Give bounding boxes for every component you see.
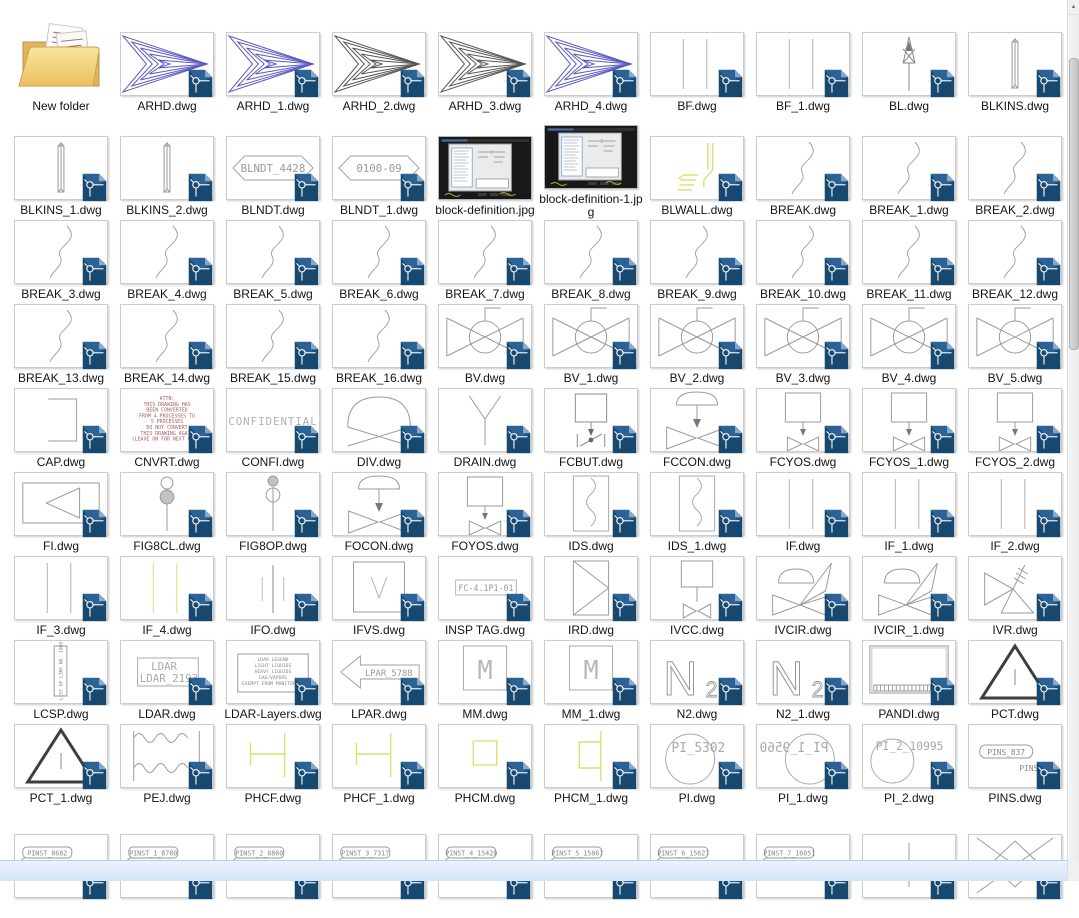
svg-text:PINST_1_8780: PINST_1_8780 (129, 849, 177, 857)
file-label: IF_1.dwg (884, 536, 933, 555)
dwg-badge-icon (822, 425, 851, 454)
scrollbar-corner (1068, 861, 1079, 881)
file-item[interactable]: BREAK_9.dwg (644, 220, 750, 304)
file-label: BV_1.dwg (564, 368, 619, 387)
file-label: PI.dwg (679, 788, 716, 807)
dwg-thumbnail (120, 136, 214, 200)
file-label: IVR.dwg (992, 620, 1037, 639)
file-label: IF_4.dwg (142, 620, 191, 639)
file-item[interactable]: FCYOS_1.dwg (856, 388, 962, 472)
dwg-badge-icon (398, 509, 427, 538)
file-label: CNVRT.dwg (134, 452, 199, 471)
file-item[interactable]: PI_2_10995PI_2.dwg (856, 724, 962, 808)
dwg-badge-icon (928, 257, 957, 286)
dwg-badge-icon (80, 593, 109, 622)
dwg-thumbnail (650, 556, 744, 620)
file-label: IDS_1.dwg (668, 536, 727, 555)
file-label: ARHD_3.dwg (449, 96, 522, 115)
dwg-badge-icon (1034, 341, 1063, 370)
svg-text:PINST_4_15420: PINST_4_15420 (445, 849, 497, 857)
dwg-thumbnail (650, 388, 744, 452)
file-item[interactable]: BREAK_5.dwg (220, 220, 326, 304)
dwg-thumbnail (226, 304, 320, 368)
file-item[interactable]: IF_4.dwg (114, 556, 220, 640)
dwg-badge-icon (610, 509, 639, 538)
file-item[interactable]: PHCF_1.dwg (326, 724, 432, 808)
dwg-badge-icon (928, 69, 957, 98)
dwg-badge-icon (1034, 425, 1063, 454)
file-label: BV_4.dwg (882, 368, 937, 387)
file-item[interactable]: BREAK_11.dwg (856, 220, 962, 304)
file-item[interactable]: FCYOS_2.dwg (962, 388, 1068, 472)
file-item[interactable]: DIV.dwg (326, 388, 432, 472)
file-label: INSP TAG.dwg (445, 620, 525, 639)
file-label: FIG8CL.dwg (133, 536, 200, 555)
dwg-badge-icon (186, 593, 215, 622)
dwg-badge-icon (292, 761, 321, 790)
svg-text:GAS/VAPORS: GAS/VAPORS (259, 675, 287, 681)
dwg-badge-icon (504, 341, 533, 370)
dwg-badge-icon (504, 593, 533, 622)
file-item[interactable]: FOYOS.dwg (432, 472, 538, 556)
file-item[interactable]: BLKINS_2.dwg (114, 116, 220, 220)
svg-text:M: M (477, 656, 492, 686)
dwg-thumbnail: LDAR LEGENDLIGHT LIQUIDSHEAVY LIQUIDSGAS… (226, 640, 320, 704)
file-item[interactable]: block-definition.jpg (432, 116, 538, 220)
file-item[interactable]: BREAK_2.dwg (962, 116, 1068, 220)
file-item[interactable]: 0100-09BLNDT_1.dwg (326, 116, 432, 220)
file-label: PI_1.dwg (778, 788, 828, 807)
file-item[interactable]: BREAK_13.dwg (8, 304, 114, 388)
file-item[interactable]: PCT_1.dwg (8, 724, 114, 808)
dwg-thumbnail (756, 388, 850, 452)
file-item[interactable]: BREAK_8.dwg (538, 220, 644, 304)
file-label: MM.dwg (462, 704, 507, 723)
file-grid: New folderARHD.dwgARHD_1.dwgARHD_2.dwgAR… (8, 0, 1068, 918)
dwg-badge-icon (610, 677, 639, 706)
dwg-thumbnail (650, 136, 744, 200)
dwg-thumbnail (438, 304, 532, 368)
dwg-thumbnail (332, 472, 426, 536)
svg-text:PINST_8682: PINST_8682 (27, 849, 67, 857)
dwg-badge-icon (928, 509, 957, 538)
file-item[interactable]: PI_5302PI.dwg (644, 724, 750, 808)
dwg-badge-icon (398, 257, 427, 286)
file-item[interactable]: ARHD.dwg (114, 0, 220, 116)
file-item[interactable]: FIG8OP.dwg (220, 472, 326, 556)
dwg-badge-icon (186, 341, 215, 370)
dwg-badge-icon (504, 257, 533, 286)
dwg-badge-icon (186, 69, 215, 98)
svg-text:0100-09: 0100-09 (356, 162, 401, 175)
file-item[interactable]: FOCON.dwg (326, 472, 432, 556)
file-item[interactable]: LDARLDAR_2193LDAR.dwg (114, 640, 220, 724)
dwg-thumbnail (650, 304, 744, 368)
file-item[interactable]: IF.dwg (750, 472, 856, 556)
dwg-badge-icon (186, 425, 215, 454)
dwg-badge-icon (1034, 677, 1063, 706)
file-label: IF_3.dwg (36, 620, 85, 639)
file-item[interactable]: PINS_837PINS_828PINS.dwg (962, 724, 1068, 808)
file-item[interactable]: BREAK_12.dwg (962, 220, 1068, 304)
file-item[interactable]: BREAK.dwg (750, 116, 856, 220)
file-item[interactable]: FCYOS.dwg (750, 388, 856, 472)
file-item[interactable]: IDS_1.dwg (644, 472, 750, 556)
file-label: IVCIR_1.dwg (874, 620, 945, 639)
file-label: IDS.dwg (568, 536, 613, 555)
dwg-badge-icon (716, 677, 745, 706)
dwg-badge-icon (292, 593, 321, 622)
file-item[interactable]: BREAK_7.dwg (432, 220, 538, 304)
file-label: CONFI.dwg (242, 452, 305, 471)
dwg-badge-icon (822, 593, 851, 622)
vertical-scrollbar-thumb[interactable] (1069, 58, 1079, 350)
dwg-thumbnail (544, 724, 638, 788)
file-label: CAP.dwg (37, 452, 85, 471)
dwg-badge-icon (504, 425, 533, 454)
dwg-thumbnail: M (438, 640, 532, 704)
file-label: BREAK_10.dwg (760, 284, 846, 303)
dwg-thumbnail (226, 472, 320, 536)
dwg-thumbnail (14, 388, 108, 452)
dwg-badge-icon (1034, 69, 1063, 98)
dwg-thumbnail (332, 556, 426, 620)
file-label: FCCON.dwg (663, 452, 731, 471)
file-label: DIV.dwg (357, 452, 401, 471)
dwg-thumbnail (756, 304, 850, 368)
file-label: BREAK.dwg (770, 200, 836, 219)
dwg-badge-icon (292, 425, 321, 454)
file-label: N2.dwg (677, 704, 718, 723)
dwg-badge-icon (186, 509, 215, 538)
dwg-thumbnail (332, 220, 426, 284)
file-item[interactable]: LIST OF LINE NO. 1989LCSP.dwg (8, 640, 114, 724)
dwg-badge-icon (822, 257, 851, 286)
file-item[interactable]: FC-4.1P1-01INSP TAG.dwg (432, 556, 538, 640)
file-item[interactable]: BV_3.dwg (750, 304, 856, 388)
dwg-badge-icon (1034, 593, 1063, 622)
file-label: FCYOS_1.dwg (869, 452, 949, 471)
file-label: FCBUT.dwg (559, 452, 623, 471)
svg-text:PI_2_10995: PI_2_10995 (876, 739, 944, 753)
file-item[interactable]: BLNDT_4428BLNDT.dwg (220, 116, 326, 220)
dwg-badge-icon (822, 69, 851, 98)
file-label: BF_1.dwg (776, 96, 830, 115)
dwg-thumbnail (14, 724, 108, 788)
file-item[interactable]: IVCIR.dwg (750, 556, 856, 640)
file-label: LCSP.dwg (33, 704, 88, 723)
dwg-badge-icon (716, 761, 745, 790)
file-item[interactable]: BREAK_3.dwg (8, 220, 114, 304)
file-item[interactable]: IVCIR_1.dwg (856, 556, 962, 640)
file-item[interactable]: BREAK_1.dwg (856, 116, 962, 220)
file-item[interactable]: BV_1.dwg (538, 304, 644, 388)
file-item[interactable]: BV_4.dwg (856, 304, 962, 388)
dwg-thumbnail (120, 32, 214, 96)
dwg-badge-icon (822, 173, 851, 202)
dwg-thumbnail (226, 220, 320, 284)
dwg-badge-icon (1034, 173, 1063, 202)
dwg-badge-icon (504, 677, 533, 706)
dwg-thumbnail (968, 136, 1062, 200)
dwg-badge-icon (610, 761, 639, 790)
dwg-badge-icon (80, 677, 109, 706)
file-item[interactable]: BLKINS_1.dwg (8, 116, 114, 220)
dwg-thumbnail: N2 (756, 640, 850, 704)
file-item[interactable]: IFO.dwg (220, 556, 326, 640)
file-label: BREAK_3.dwg (21, 284, 100, 303)
vertical-scrollbar[interactable]: ▲ (1067, 0, 1079, 881)
dwg-thumbnail (862, 220, 956, 284)
file-item[interactable]: PANDI.dwg (856, 640, 962, 724)
dwg-thumbnail (862, 556, 956, 620)
file-item[interactable]: New folder (8, 0, 114, 116)
file-item[interactable]: IVR.dwg (962, 556, 1068, 640)
file-item[interactable]: FI.dwg (8, 472, 114, 556)
file-item[interactable]: IF_2.dwg (962, 472, 1068, 556)
dwg-thumbnail (332, 388, 426, 452)
dwg-badge-icon (292, 69, 321, 98)
file-item[interactable]: IF_1.dwg (856, 472, 962, 556)
image-thumbnail (544, 125, 638, 189)
dwg-badge-icon (822, 761, 851, 790)
file-item[interactable]: BREAK_15.dwg (220, 304, 326, 388)
file-item[interactable]: PHCF.dwg (220, 724, 326, 808)
dwg-thumbnail: PI_1_9560 (756, 724, 850, 788)
file-item[interactable]: FCCON.dwg (644, 388, 750, 472)
file-item[interactable]: LPAR_5788LPAR.dwg (326, 640, 432, 724)
dwg-thumbnail (438, 724, 532, 788)
dwg-badge-icon (928, 341, 957, 370)
screenshot-thumbnail-image (545, 126, 637, 188)
file-label: N2_1.dwg (776, 704, 830, 723)
svg-text:PINS_837: PINS_837 (987, 748, 1025, 757)
file-label: FCYOS_2.dwg (975, 452, 1055, 471)
dwg-badge-icon (716, 509, 745, 538)
scroll-up-arrow-icon[interactable]: ▲ (1068, 0, 1079, 15)
file-label: BLKINS.dwg (981, 96, 1049, 115)
folder-icon (15, 20, 107, 100)
dwg-badge-icon (610, 341, 639, 370)
dwg-badge-icon (610, 257, 639, 286)
file-item[interactable]: IF_3.dwg (8, 556, 114, 640)
file-item[interactable]: CONFIDENTIALCONFI.dwg (220, 388, 326, 472)
dwg-badge-icon (80, 509, 109, 538)
file-item[interactable]: BREAK_14.dwg (114, 304, 220, 388)
file-item[interactable]: BREAK_10.dwg (750, 220, 856, 304)
dwg-thumbnail (544, 472, 638, 536)
dwg-thumbnail: PI_2_10995 (862, 724, 956, 788)
dwg-thumbnail (14, 136, 108, 200)
file-label: LDAR.dwg (138, 704, 195, 723)
file-label: MM_1.dwg (562, 704, 621, 723)
file-item[interactable]: ARHD_4.dwg (538, 0, 644, 116)
dwg-thumbnail (14, 220, 108, 284)
file-label: BLWALL.dwg (661, 200, 732, 219)
file-item[interactable]: PCT.dwg (962, 640, 1068, 724)
dwg-thumbnail (650, 220, 744, 284)
file-label: PINS.dwg (988, 788, 1041, 807)
file-item[interactable]: N2N2_1.dwg (750, 640, 856, 724)
file-label: BLKINS_2.dwg (126, 200, 207, 219)
file-item[interactable]: IVCC.dwg (644, 556, 750, 640)
file-item[interactable]: MMM_1.dwg (538, 640, 644, 724)
file-label: IRD.dwg (568, 620, 614, 639)
file-item[interactable]: ARHD_2.dwg (326, 0, 432, 116)
dwg-thumbnail (862, 32, 956, 96)
dwg-thumbnail (968, 220, 1062, 284)
dwg-badge-icon (504, 69, 533, 98)
dwg-badge-icon (80, 257, 109, 286)
file-label: BREAK_4.dwg (127, 284, 206, 303)
file-label: New folder (32, 96, 89, 115)
dwg-badge-icon (398, 69, 427, 98)
dwg-thumbnail: 0100-09 (332, 136, 426, 200)
file-label: block-definition-1.jpg (539, 189, 643, 219)
dwg-thumbnail (756, 472, 850, 536)
file-item[interactable]: MMM.dwg (432, 640, 538, 724)
dwg-thumbnail (120, 472, 214, 536)
svg-text:PINST_3_7317: PINST_3_7317 (341, 849, 389, 857)
dwg-thumbnail (226, 724, 320, 788)
file-item[interactable]: BREAK_4.dwg (114, 220, 220, 304)
dwg-badge-icon (292, 173, 321, 202)
file-item[interactable]: PEJ.dwg (114, 724, 220, 808)
file-label: BV_2.dwg (670, 368, 725, 387)
dwg-thumbnail: N2 (650, 640, 744, 704)
file-label: BV.dwg (465, 368, 505, 387)
dwg-thumbnail (544, 556, 638, 620)
file-label: BREAK_2.dwg (975, 200, 1054, 219)
svg-text:PINST_2_8860: PINST_2_8860 (235, 849, 283, 857)
dwg-thumbnail (756, 556, 850, 620)
screenshot-thumbnail-image (439, 137, 531, 199)
file-item[interactable]: BREAK_16.dwg (326, 304, 432, 388)
svg-text:LDAR LEGEND: LDAR LEGEND (257, 657, 288, 663)
dwg-badge-icon (504, 509, 533, 538)
dwg-thumbnail (438, 220, 532, 284)
file-item[interactable]: BL.dwg (856, 0, 962, 116)
dwg-badge-icon (80, 761, 109, 790)
file-item[interactable]: BF.dwg (644, 0, 750, 116)
dwg-thumbnail: PINS_837PINS_828 (968, 724, 1062, 788)
file-item[interactable]: IRD.dwg (538, 556, 644, 640)
dwg-thumbnail (544, 304, 638, 368)
file-item[interactable]: block-definition-1.jpg (538, 116, 644, 220)
dwg-badge-icon (1034, 761, 1063, 790)
file-label: PHCF_1.dwg (343, 788, 414, 807)
dwg-thumbnail (862, 388, 956, 452)
file-label: BREAK_8.dwg (551, 284, 630, 303)
dwg-badge-icon (928, 425, 957, 454)
file-item[interactable]: PI_1_9560PI_1.dwg (750, 724, 856, 808)
svg-text:PI_1_9560: PI_1_9560 (760, 741, 829, 756)
dwg-thumbnail (968, 388, 1062, 452)
file-item[interactable]: IDS.dwg (538, 472, 644, 556)
file-label: LPAR.dwg (351, 704, 407, 723)
dwg-thumbnail (968, 556, 1062, 620)
svg-text:N: N (769, 653, 803, 703)
dwg-badge-icon (292, 257, 321, 286)
file-label: PCT.dwg (991, 704, 1039, 723)
file-item[interactable]: BF_1.dwg (750, 0, 856, 116)
dwg-thumbnail (968, 472, 1062, 536)
file-item[interactable]: IFVS.dwg (326, 556, 432, 640)
dwg-badge-icon (822, 341, 851, 370)
file-item[interactable]: PHCM_1.dwg (538, 724, 644, 808)
file-label: IF_2.dwg (990, 536, 1039, 555)
dwg-badge-icon (80, 425, 109, 454)
file-label: LDAR-Layers.dwg (224, 704, 321, 723)
dwg-badge-icon (716, 593, 745, 622)
file-label: BV_5.dwg (988, 368, 1043, 387)
file-item[interactable]: ARHD_3.dwg (432, 0, 538, 116)
dwg-badge-icon (186, 173, 215, 202)
file-label: BREAK_12.dwg (972, 284, 1058, 303)
dwg-badge-icon (292, 677, 321, 706)
dwg-badge-icon (398, 761, 427, 790)
dwg-thumbnail (120, 304, 214, 368)
dwg-thumbnail (756, 32, 850, 96)
file-item[interactable]: ATTN:THIS DRAWING HASBEEN CONVERTEDFROM … (114, 388, 220, 472)
file-label: ARHD_1.dwg (237, 96, 310, 115)
dwg-thumbnail (544, 220, 638, 284)
dwg-thumbnail (438, 472, 532, 536)
file-label: FCYOS.dwg (770, 452, 837, 471)
dwg-thumbnail (862, 472, 956, 536)
file-label: block-definition.jpg (435, 200, 534, 219)
dwg-thumbnail (226, 556, 320, 620)
file-item[interactable]: BLKINS.dwg (962, 0, 1068, 116)
file-item[interactable]: DRAIN.dwg (432, 388, 538, 472)
dwg-thumbnail: BLNDT_4428 (226, 136, 320, 200)
file-label: BV_3.dwg (776, 368, 831, 387)
file-label: BLNDT.dwg (241, 200, 304, 219)
file-label: ARHD.dwg (137, 96, 196, 115)
file-label: ARHD_2.dwg (343, 96, 416, 115)
dwg-thumbnail (332, 304, 426, 368)
file-item[interactable]: FCBUT.dwg (538, 388, 644, 472)
svg-text:HEAVY LIQUIDS: HEAVY LIQUIDS (255, 669, 292, 675)
dwg-thumbnail: LDARLDAR_2193 (120, 640, 214, 704)
file-label: IFO.dwg (250, 620, 295, 639)
dwg-badge-icon (292, 509, 321, 538)
file-item[interactable]: BLWALL.dwg (644, 116, 750, 220)
horizontal-scrollbar[interactable] (0, 860, 1068, 881)
file-label: FIG8OP.dwg (239, 536, 307, 555)
file-item[interactable]: BV_2.dwg (644, 304, 750, 388)
file-item[interactable]: BV.dwg (432, 304, 538, 388)
file-label: BLNDT_1.dwg (340, 200, 418, 219)
svg-text:M: M (583, 656, 598, 686)
file-item[interactable]: N2N2.dwg (644, 640, 750, 724)
file-item[interactable]: PHCM.dwg (432, 724, 538, 808)
svg-text:FC-4.1P1-01: FC-4.1P1-01 (458, 583, 513, 593)
dwg-badge-icon (398, 677, 427, 706)
file-item[interactable]: BV_5.dwg (962, 304, 1068, 388)
file-item[interactable]: LDAR LEGENDLIGHT LIQUIDSHEAVY LIQUIDSGAS… (220, 640, 326, 724)
file-item[interactable]: CAP.dwg (8, 388, 114, 472)
file-item[interactable]: ARHD_1.dwg (220, 0, 326, 116)
file-item[interactable]: FIG8CL.dwg (114, 472, 220, 556)
dwg-badge-icon (1034, 257, 1063, 286)
dwg-badge-icon (822, 677, 851, 706)
file-label: IFVS.dwg (353, 620, 405, 639)
dwg-badge-icon (398, 425, 427, 454)
file-item[interactable]: BREAK_6.dwg (326, 220, 432, 304)
dwg-badge-icon (398, 173, 427, 202)
dwg-thumbnail (862, 136, 956, 200)
